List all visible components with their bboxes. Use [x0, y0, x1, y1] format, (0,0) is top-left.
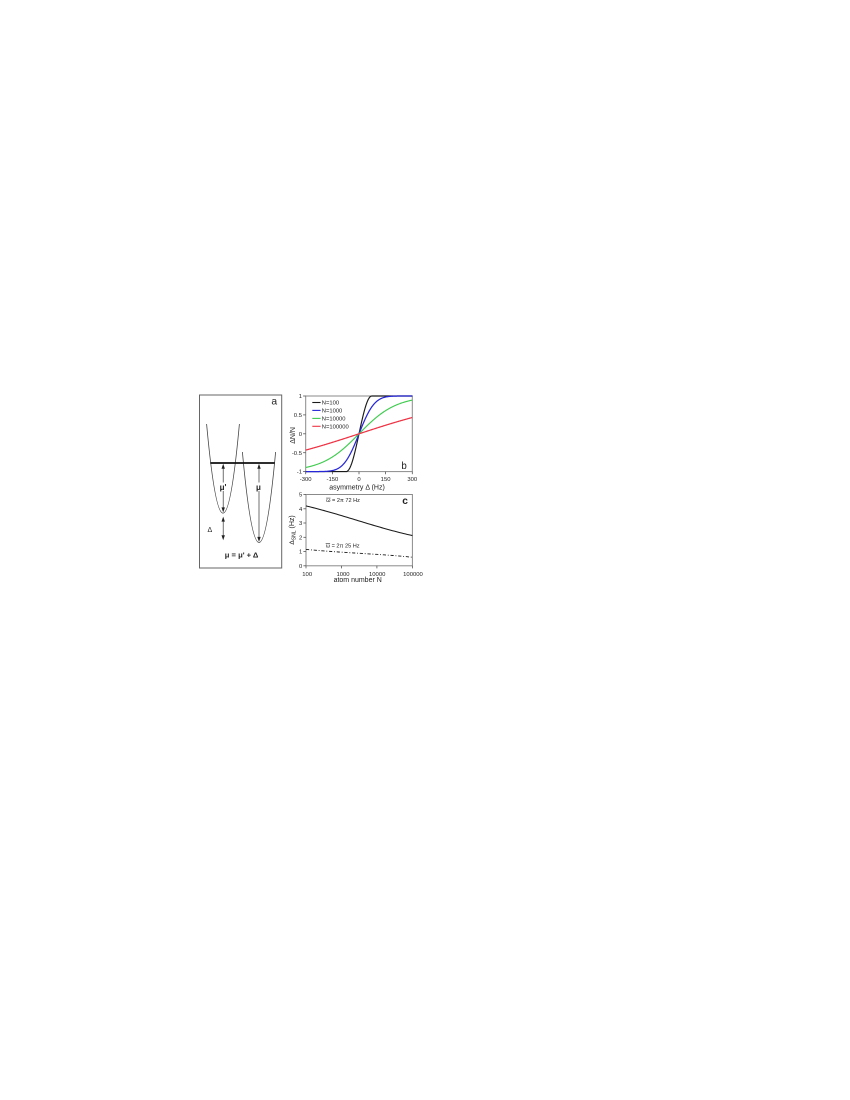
svg-text:-0.5: -0.5	[292, 451, 303, 457]
svg-text:μ: μ	[256, 483, 261, 492]
svg-text:N=100: N=100	[322, 401, 339, 407]
svg-text:ω = 2π 72 Hz: ω = 2π 72 Hz	[326, 498, 360, 504]
svg-text:1: 1	[299, 550, 302, 556]
svg-text:Δ: Δ	[208, 527, 213, 534]
svg-text:300: 300	[407, 477, 418, 483]
svg-text:N=10000: N=10000	[322, 416, 346, 422]
svg-text:atom number N: atom number N	[334, 577, 382, 584]
svg-text:0.5: 0.5	[294, 413, 303, 419]
svg-text:N=1000: N=1000	[322, 408, 342, 414]
svg-text:100: 100	[302, 572, 313, 578]
svg-text:150: 150	[381, 477, 392, 483]
svg-text:μ': μ'	[220, 483, 227, 492]
svg-text:μ = μ' + Δ: μ = μ' + Δ	[225, 550, 259, 559]
svg-text:a: a	[271, 396, 277, 407]
svg-text:ω = 2π 25 Hz: ω = 2π 25 Hz	[326, 543, 360, 549]
svg-text:2: 2	[299, 535, 302, 541]
svg-text:ΔN/N: ΔN/N	[290, 427, 297, 444]
svg-text:100000: 100000	[403, 572, 423, 578]
svg-text:asymmetry Δ (Hz): asymmetry Δ (Hz)	[329, 485, 385, 492]
svg-text:N=100000: N=100000	[322, 424, 349, 430]
svg-text:-1: -1	[297, 470, 302, 476]
svg-text:-150: -150	[327, 477, 340, 483]
svg-text:b: b	[401, 461, 406, 472]
svg-text:-300: -300	[300, 477, 313, 483]
svg-text:1: 1	[299, 394, 302, 400]
svg-text:c: c	[402, 496, 408, 507]
